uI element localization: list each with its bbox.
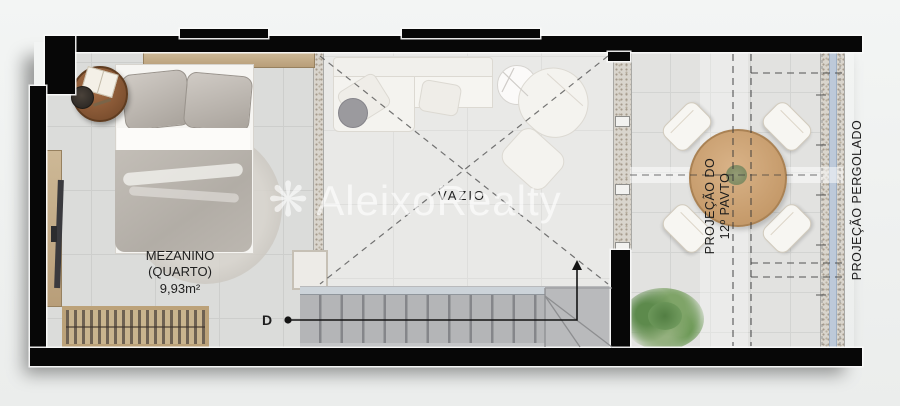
window-mullion bbox=[615, 116, 630, 127]
blanket bbox=[115, 150, 252, 252]
wall-window-column bbox=[608, 52, 630, 61]
wall-top-notch bbox=[402, 29, 540, 38]
wall-stairs-terrace bbox=[611, 250, 630, 350]
wall-top-notch bbox=[180, 29, 268, 38]
wall-top bbox=[58, 36, 862, 52]
window-strip bbox=[613, 52, 632, 250]
projection-12th-floor-line2: 12º PAVTO bbox=[718, 141, 733, 271]
book-spine bbox=[97, 71, 104, 92]
room-name: MEZANINO bbox=[118, 248, 242, 264]
stair-half-wall bbox=[292, 250, 328, 290]
wall-left bbox=[30, 86, 46, 350]
projection-12th-floor-line1: PROJEÇÃO DO bbox=[703, 141, 718, 271]
stair-treads bbox=[300, 294, 545, 346]
potted-plant-core bbox=[648, 302, 682, 330]
wall-bottom bbox=[30, 348, 862, 366]
room-area: 9,93m² bbox=[118, 281, 242, 297]
stair-direction-label: D bbox=[262, 312, 272, 328]
void-side-table bbox=[338, 98, 368, 128]
pillow bbox=[183, 71, 254, 133]
stair-landing-edge bbox=[300, 287, 545, 294]
tv-mount bbox=[51, 226, 57, 242]
blanket-fold bbox=[129, 186, 239, 203]
pergola-strip bbox=[820, 52, 845, 348]
pergola-beam-line bbox=[829, 52, 837, 348]
floor-plan: MEZANINO (QUARTO) 9,93m² VAZIO D PROJEÇÃ… bbox=[0, 0, 900, 406]
bench-rail bbox=[66, 326, 205, 328]
room-qualifier: (QUARTO) bbox=[118, 264, 242, 280]
window-mullion bbox=[615, 184, 630, 195]
room-label: MEZANINO (QUARTO) 9,93m² bbox=[118, 248, 242, 297]
blanket-fold bbox=[123, 163, 244, 186]
pillow bbox=[120, 69, 191, 132]
slatted-bench bbox=[62, 306, 209, 348]
projection-12th-floor-label: PROJEÇÃO DO 12º PAVTO bbox=[703, 141, 735, 271]
lounge-chair-crease bbox=[547, 73, 583, 106]
sofa-cushion bbox=[418, 79, 463, 117]
wall-left-corner bbox=[45, 36, 75, 94]
void-label: VAZIO bbox=[438, 188, 486, 203]
projection-pergola-label: PROJEÇÃO PERGOLADO bbox=[850, 115, 866, 285]
